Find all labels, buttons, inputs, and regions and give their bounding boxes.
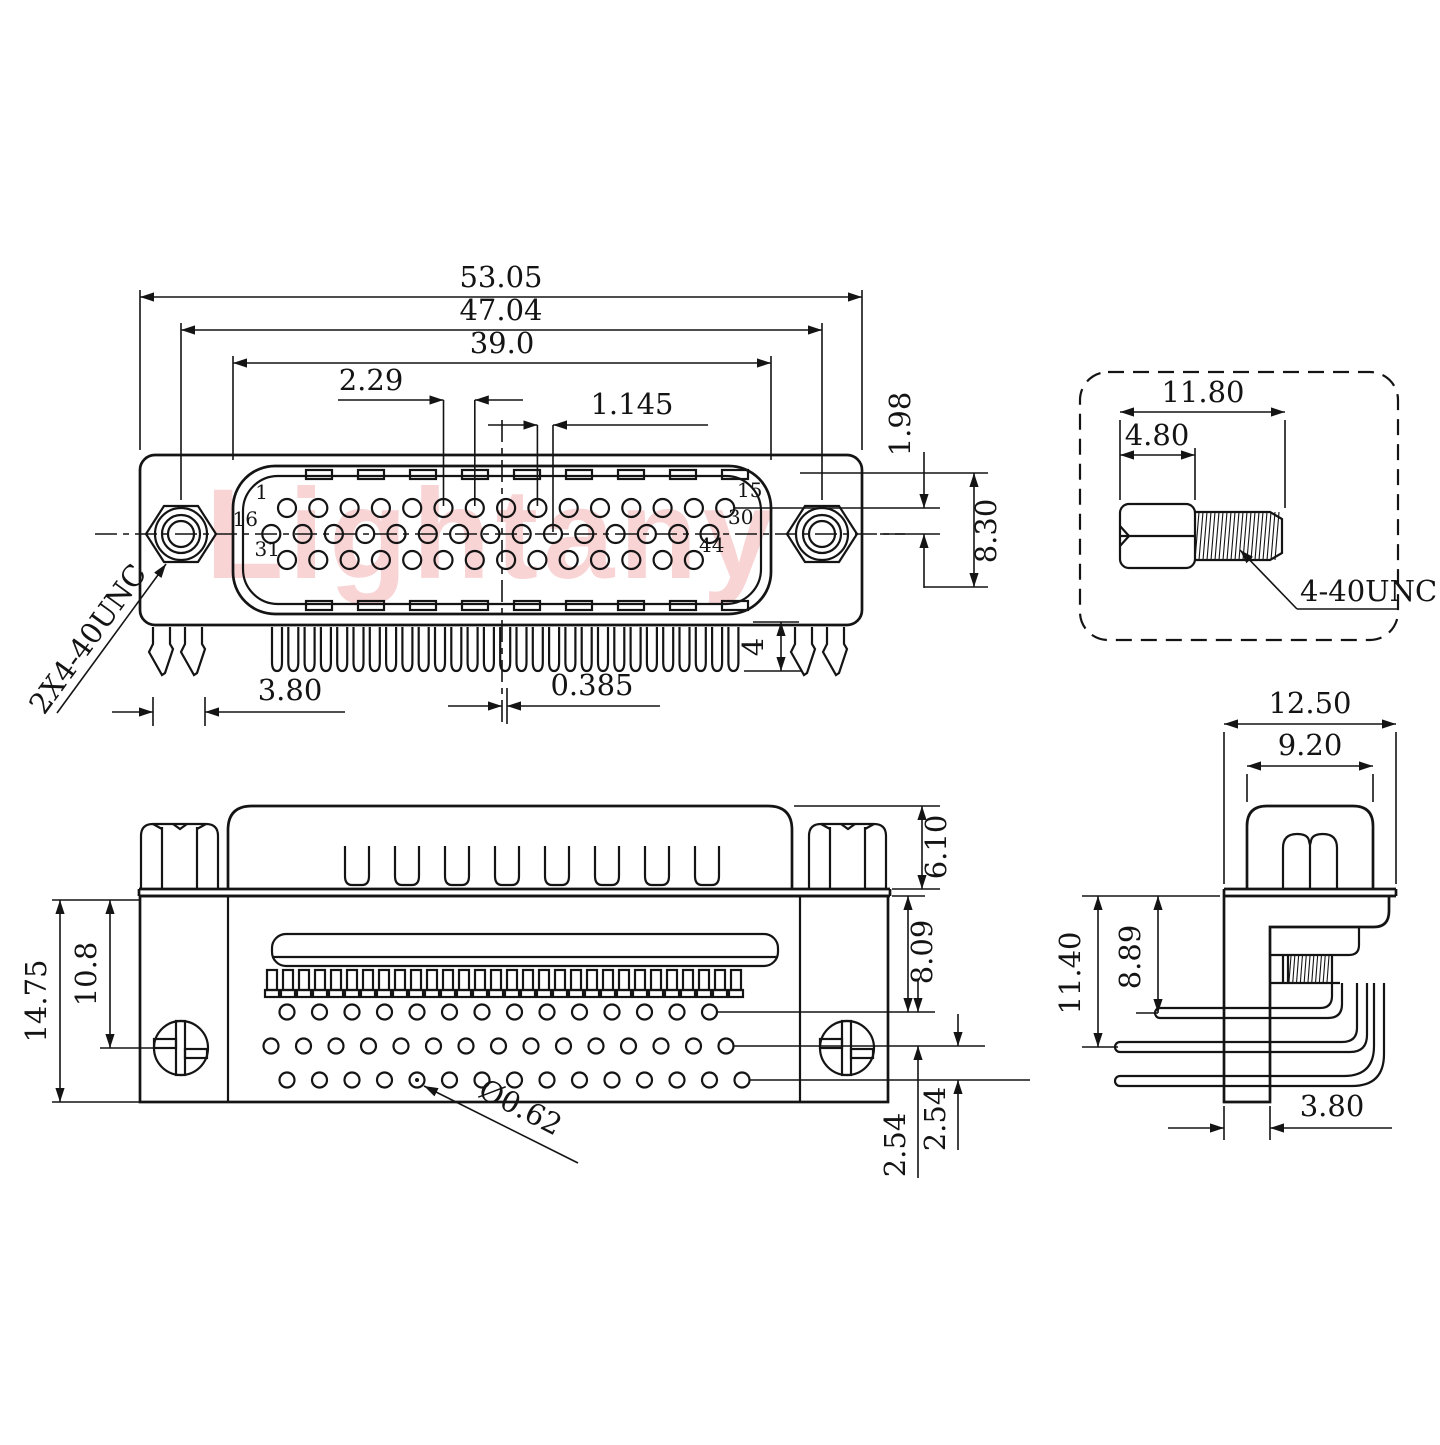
solder-hole-field — [264, 1005, 750, 1088]
solder-tail — [354, 627, 364, 671]
thread-hatch-line — [1227, 512, 1231, 560]
bottom-view: 14.75 10.8 6.10 8.09 2.54 2.54 — [19, 806, 1030, 1178]
comb-tooth — [523, 970, 533, 990]
comb-tooth-foot — [489, 990, 503, 997]
solder-hole — [280, 1005, 295, 1020]
comb-tooth-foot — [361, 990, 375, 997]
insulator-panel-lines — [228, 896, 800, 1102]
svg-text:4.80: 4.80 — [1125, 418, 1190, 452]
insulator-body — [140, 896, 888, 1102]
comb-tooth — [539, 970, 549, 990]
comb-tooth-foot — [441, 990, 455, 997]
svg-text:11.40: 11.40 — [1053, 931, 1087, 1014]
thread-hatch-line — [1259, 512, 1263, 560]
comb-tooth — [331, 970, 341, 990]
thread-hatch-line — [1247, 512, 1251, 560]
comb-tooth — [299, 970, 309, 990]
solder-hole — [637, 1005, 652, 1020]
svg-text:9.20: 9.20 — [1278, 728, 1343, 762]
solder-hole — [556, 1039, 571, 1054]
svg-text:39.0: 39.0 — [470, 326, 535, 360]
solder-tails — [272, 627, 738, 671]
comb-tooth-foot — [473, 990, 487, 997]
comb-tooth-foot — [713, 990, 727, 997]
shell-slot — [445, 846, 469, 885]
comb-tooth-foot — [729, 990, 743, 997]
solder-tail — [305, 627, 315, 671]
thread-hatch-line — [1319, 956, 1321, 982]
shell-slot — [545, 846, 569, 885]
dim-side-pin-height: 8.89 — [1113, 896, 1158, 1013]
board-lock-leg — [791, 627, 815, 675]
rear-shell-outline — [228, 806, 792, 889]
solder-tail — [419, 627, 429, 671]
solder-tail — [451, 627, 461, 671]
solder-hole — [572, 1073, 587, 1088]
solder-hole — [491, 1039, 506, 1054]
side-thread-insert — [1283, 955, 1332, 983]
solder-hole — [410, 1005, 425, 1020]
pin-label-16: 16 — [233, 507, 258, 531]
svg-text:1.98: 1.98 — [883, 392, 917, 457]
solder-hole — [361, 1039, 376, 1054]
thread-hatch-line — [1289, 956, 1291, 982]
thread-hatch-line — [1223, 512, 1227, 560]
mount-screw-right — [820, 1021, 874, 1075]
thread-hatch-line — [1293, 956, 1295, 982]
screw-thread-hatch — [1195, 512, 1279, 560]
comb-tooth — [619, 970, 629, 990]
shell-slots — [345, 846, 719, 885]
solder-tail — [321, 627, 331, 671]
pin-label-44: 44 — [699, 533, 724, 557]
solder-hole — [442, 1073, 457, 1088]
solder-hole — [589, 1039, 604, 1054]
dim-plate-thickness: 3.80 — [1168, 1089, 1392, 1140]
comb-tooth-foot — [633, 990, 647, 997]
solder-hole — [312, 1005, 327, 1020]
board-lock-leg — [149, 627, 173, 675]
solder-hole — [264, 1039, 279, 1054]
solder-tail — [680, 627, 690, 671]
solder-tail — [614, 627, 624, 671]
solder-hole — [377, 1073, 392, 1088]
comb-tooth — [651, 970, 661, 990]
thread-hatch-line — [1304, 956, 1306, 982]
comb-tooth — [363, 970, 373, 990]
solder-hole — [605, 1073, 620, 1088]
solder-hole — [637, 1073, 652, 1088]
solder-hole — [670, 1005, 685, 1020]
screw-thread-note: 2X4-40UNC — [22, 558, 166, 721]
solder-hole — [670, 1073, 685, 1088]
solder-tail — [598, 627, 608, 671]
solder-tail — [386, 627, 396, 671]
solder-tail — [712, 627, 722, 671]
comb-tooth — [715, 970, 725, 990]
solder-hole — [394, 1039, 409, 1054]
comb-tooth-foot — [681, 990, 695, 997]
pin-label-31: 31 — [255, 537, 280, 561]
thread-hatch-line — [1316, 956, 1318, 982]
comb-tooth-foot — [377, 990, 391, 997]
thread-hatch-line — [1203, 512, 1207, 560]
standoff-left — [141, 824, 218, 889]
thread-hatch-line — [1312, 956, 1314, 982]
svg-text:53.05: 53.05 — [459, 260, 542, 294]
side-view: 12.50 9.20 — [1053, 686, 1396, 1140]
solder-hole — [345, 1005, 360, 1020]
shell-slot — [595, 846, 619, 885]
screw-thread-label: 2X4-40UNC — [22, 558, 153, 721]
solder-tail — [272, 627, 282, 671]
solder-tail — [337, 627, 347, 671]
thread-hatch-line — [1251, 512, 1255, 560]
comb-tooth — [315, 970, 325, 990]
thread-hatch-line — [1255, 512, 1259, 560]
svg-text:6.10: 6.10 — [919, 815, 953, 880]
thread-hatch-line — [1215, 512, 1219, 560]
comb-tooth — [267, 970, 277, 990]
comb-tooth — [283, 970, 293, 990]
dim-leg-spacing: 3.80 — [112, 673, 345, 726]
comb-tooth — [459, 970, 469, 990]
thread-hatch-line — [1327, 956, 1329, 982]
svg-text:2.54: 2.54 — [878, 1113, 912, 1178]
comb-tooth — [491, 970, 501, 990]
thread-hatch-line — [1235, 512, 1239, 560]
svg-text:2.29: 2.29 — [339, 363, 404, 397]
screw-detail-view: 11.80 4.80 4-40UNC — [1080, 372, 1437, 640]
thread-hatch-line — [1275, 512, 1279, 560]
svg-text:8.09: 8.09 — [905, 920, 939, 985]
solder-tail — [484, 627, 494, 671]
solder-tail — [549, 627, 559, 671]
svg-text:47.04: 47.04 — [459, 293, 542, 327]
dim-nut-size: 8.30 — [800, 473, 1003, 587]
solder-tail — [468, 627, 478, 671]
shell-slot — [395, 846, 419, 885]
callout-target-dot — [415, 1078, 419, 1082]
solder-hole — [296, 1039, 311, 1054]
solder-hole — [702, 1005, 717, 1020]
bent-pins — [1115, 983, 1384, 1086]
solder-hole — [507, 1005, 522, 1020]
svg-text:1.145: 1.145 — [590, 387, 673, 421]
solder-hole — [654, 1039, 669, 1054]
solder-hole — [329, 1039, 344, 1054]
svg-text:14.75: 14.75 — [19, 959, 53, 1042]
solder-hole — [312, 1073, 327, 1088]
comb-tooth-foot — [329, 990, 343, 997]
solder-hole — [540, 1005, 555, 1020]
comb-tooth-foot — [553, 990, 567, 997]
solder-tail — [663, 627, 673, 671]
thread-hatch-line — [1308, 956, 1310, 982]
svg-text:0.385: 0.385 — [550, 668, 633, 702]
comb-tooth — [731, 970, 741, 990]
side-flange — [1224, 889, 1396, 896]
comb-tooth — [587, 970, 597, 990]
solder-hole — [719, 1039, 734, 1054]
solder-hole — [524, 1039, 539, 1054]
shell-slot — [645, 846, 669, 885]
solder-hole — [735, 1073, 750, 1088]
dim-tail-length: 4 — [736, 622, 801, 671]
comb-tooth-foot — [297, 990, 311, 997]
svg-text:2.54: 2.54 — [918, 1087, 952, 1152]
comb-tooth — [683, 970, 693, 990]
svg-text:10.8: 10.8 — [69, 942, 103, 1007]
standoff-right — [809, 824, 886, 889]
comb-tooth — [571, 970, 581, 990]
svg-text:4: 4 — [736, 638, 770, 656]
svg-text:3.80: 3.80 — [1300, 1089, 1365, 1123]
comb-tooth-foot — [457, 990, 471, 997]
solder-hole — [442, 1005, 457, 1020]
dim-standoff-width: 9.20 — [1247, 728, 1373, 802]
shell-slot — [695, 846, 719, 885]
comb-tooth-foot — [697, 990, 711, 997]
svg-text:12.50: 12.50 — [1268, 686, 1351, 720]
comb-tooth-foot — [665, 990, 679, 997]
solder-tail — [402, 627, 412, 671]
dim-tail-offset: 0.385 — [448, 668, 660, 724]
thread-hatch-line — [1219, 512, 1223, 560]
comb-tooth-foot — [649, 990, 663, 997]
comb-tooth-foot — [345, 990, 359, 997]
svg-text:3.80: 3.80 — [258, 673, 323, 707]
comb-tooth-foot — [537, 990, 551, 997]
solder-hole — [459, 1039, 474, 1054]
comb-tooth — [347, 970, 357, 990]
comb-tooth-foot — [601, 990, 615, 997]
solder-hole — [540, 1073, 555, 1088]
pin-label-15: 15 — [737, 478, 762, 502]
comb-tooth-foot — [569, 990, 583, 997]
technical-drawing: Lightany 1 15 16 30 31 44 — [0, 0, 1440, 1440]
thread-hatch-line — [1199, 512, 1203, 560]
comb-tooth-foot — [521, 990, 535, 997]
solder-hole — [426, 1039, 441, 1054]
comb-tooth-foot — [617, 990, 631, 997]
dim-screw-center: 10.8 — [69, 900, 110, 1048]
screw-body — [1120, 504, 1282, 568]
comb-tooth — [635, 970, 645, 990]
mount-screw-left — [154, 1021, 208, 1075]
svg-text:11.80: 11.80 — [1161, 375, 1244, 409]
comb-tooth-foot — [409, 990, 423, 997]
comb-tooth-foot — [265, 990, 279, 997]
solder-tail — [288, 627, 298, 671]
thread-callout: 4-40UNC — [1240, 550, 1437, 609]
watermark-text: Lightany — [205, 463, 778, 606]
comb-tooth — [699, 970, 709, 990]
dim-body-height: 8.09 — [892, 896, 939, 1012]
comb-tooth-foot — [505, 990, 519, 997]
board-lock-leg — [823, 627, 847, 675]
thread-hatch-line — [1323, 956, 1325, 982]
insulator-step — [272, 934, 778, 966]
comb-tooth — [667, 970, 677, 990]
comb-tooth — [507, 970, 517, 990]
svg-text:8.30: 8.30 — [969, 499, 1003, 564]
comb-tooth — [475, 970, 485, 990]
solder-hole — [280, 1073, 295, 1088]
comb-tooth — [555, 970, 565, 990]
solder-tail — [647, 627, 657, 671]
thread-hatch-line — [1207, 512, 1211, 560]
solder-hole — [377, 1005, 392, 1020]
comb-tooth-foot — [393, 990, 407, 997]
solder-tail — [696, 627, 706, 671]
pin-label-1: 1 — [255, 480, 268, 504]
solder-tail — [565, 627, 575, 671]
thread-hatch-line — [1263, 512, 1267, 560]
comb-tooth-foot — [281, 990, 295, 997]
thread-hatch-line — [1267, 512, 1271, 560]
svg-text:8.89: 8.89 — [1113, 925, 1147, 990]
dim-row-spacing-1: 2.54 — [878, 980, 918, 1178]
solder-tail — [435, 627, 445, 671]
board-lock-leg — [181, 627, 205, 675]
solder-tail — [533, 627, 543, 671]
comb-tooth-foot — [313, 990, 327, 997]
thread-hatch-line — [1211, 512, 1215, 560]
solder-hole — [702, 1073, 717, 1088]
thread-hatch-line — [1271, 512, 1275, 560]
solder-hole — [686, 1039, 701, 1054]
solder-tail — [517, 627, 527, 671]
front-view: Lightany 1 15 16 30 31 44 — [22, 260, 1003, 726]
hole-diameter-callout: Ø0.62 — [424, 1072, 578, 1163]
dim-row-spacing-2: 2.54 — [918, 1014, 958, 1151]
solder-tail — [631, 627, 641, 671]
comb-tooth — [379, 970, 389, 990]
thread-hatch-line — [1300, 956, 1302, 982]
thread-callout-label: 4-40UNC — [1300, 574, 1437, 608]
comb-tooth-foot — [585, 990, 599, 997]
solder-hole — [572, 1005, 587, 1020]
comb-tooth — [411, 970, 421, 990]
tail-comb — [265, 957, 778, 997]
solder-hole — [621, 1039, 636, 1054]
drawing-page: Lightany 1 15 16 30 31 44 — [0, 0, 1440, 1440]
comb-tooth — [427, 970, 437, 990]
comb-tooth — [395, 970, 405, 990]
row-leader-lines — [100, 1012, 1030, 1080]
dim-standoff-height: 6.10 — [794, 806, 953, 889]
solder-hole — [605, 1005, 620, 1020]
solder-hole — [345, 1073, 360, 1088]
thread-hatch-line — [1231, 512, 1235, 560]
solder-hole — [475, 1005, 490, 1020]
side-standoff — [1247, 806, 1373, 889]
comb-tooth — [443, 970, 453, 990]
shell-slot — [345, 846, 369, 885]
solder-tail — [370, 627, 380, 671]
dim-screw-head-length: 4.80 — [1120, 418, 1195, 500]
thread-hatch-line — [1297, 956, 1299, 982]
comb-tooth-foot — [425, 990, 439, 997]
solder-tail — [582, 627, 592, 671]
comb-tooth — [603, 970, 613, 990]
shell-slot — [495, 846, 519, 885]
